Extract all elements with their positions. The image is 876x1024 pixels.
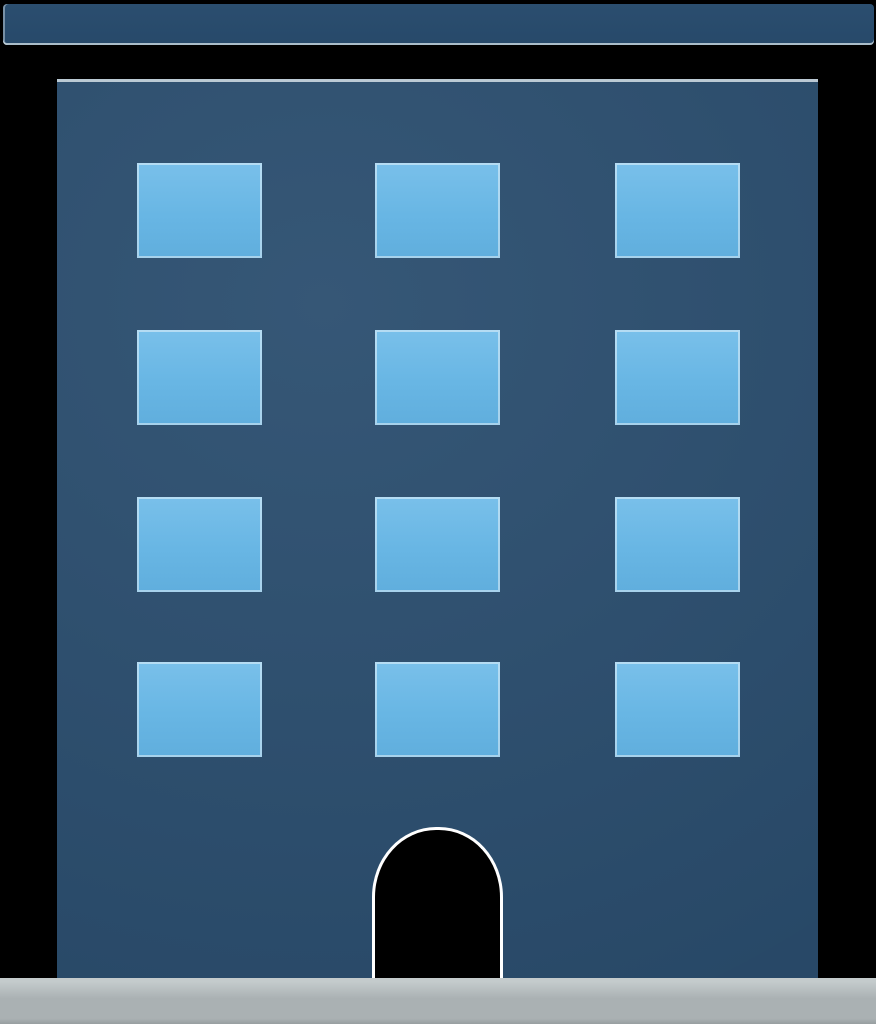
door-arch — [372, 827, 503, 978]
building-window — [375, 330, 500, 425]
building-window — [375, 662, 500, 757]
building-window — [615, 497, 740, 592]
building-window — [615, 163, 740, 258]
building-base — [0, 978, 876, 1024]
building-window — [137, 662, 262, 757]
building-window — [615, 662, 740, 757]
building-window — [137, 497, 262, 592]
roof-bar — [3, 4, 874, 45]
building-window — [137, 163, 262, 258]
building-window — [615, 330, 740, 425]
building-window — [137, 330, 262, 425]
building-window — [375, 497, 500, 592]
building-window — [375, 163, 500, 258]
